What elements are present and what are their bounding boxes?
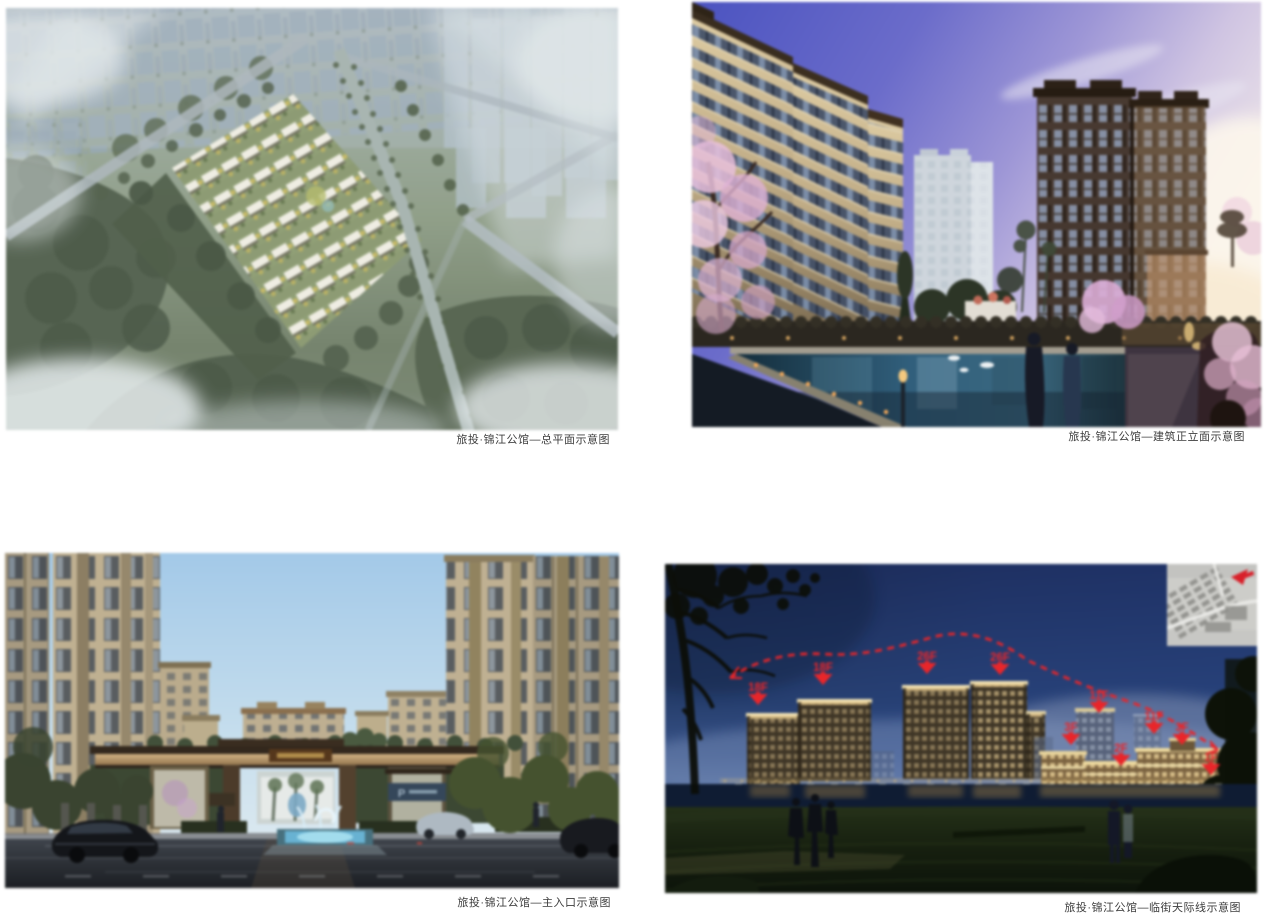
- svg-text:P: P: [398, 788, 405, 800]
